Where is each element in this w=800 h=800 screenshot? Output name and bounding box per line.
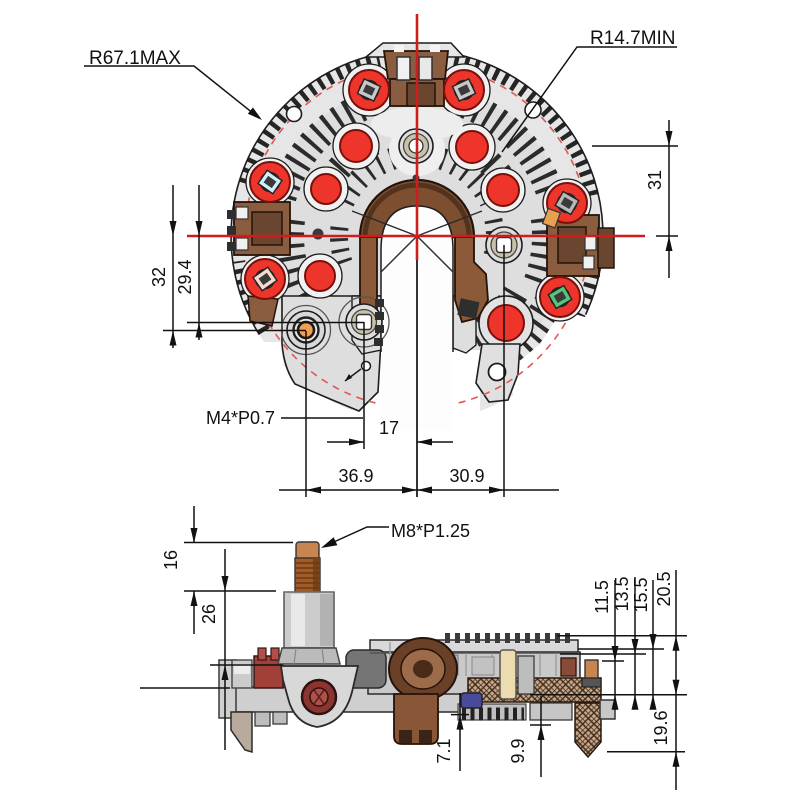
- svg-text:M8*P1.25: M8*P1.25: [391, 521, 470, 541]
- svg-text:26: 26: [199, 604, 219, 624]
- svg-text:19.6: 19.6: [651, 710, 671, 745]
- svg-text:36.9: 36.9: [338, 466, 373, 486]
- svg-text:R14.7MIN: R14.7MIN: [590, 28, 676, 49]
- svg-text:32: 32: [149, 267, 169, 287]
- svg-text:15.5: 15.5: [631, 577, 651, 612]
- svg-text:11.5: 11.5: [592, 580, 612, 614]
- svg-text:16: 16: [161, 550, 181, 570]
- svg-text:30.9: 30.9: [449, 466, 484, 486]
- svg-text:7.1: 7.1: [434, 738, 454, 763]
- svg-text:17: 17: [379, 418, 399, 438]
- svg-text:9.9: 9.9: [508, 738, 528, 763]
- svg-text:20.5: 20.5: [654, 571, 674, 606]
- svg-text:29.4: 29.4: [175, 259, 195, 294]
- svg-text:31: 31: [645, 170, 665, 190]
- svg-text:13.5: 13.5: [612, 576, 632, 611]
- svg-text:M4*P0.7: M4*P0.7: [206, 408, 275, 428]
